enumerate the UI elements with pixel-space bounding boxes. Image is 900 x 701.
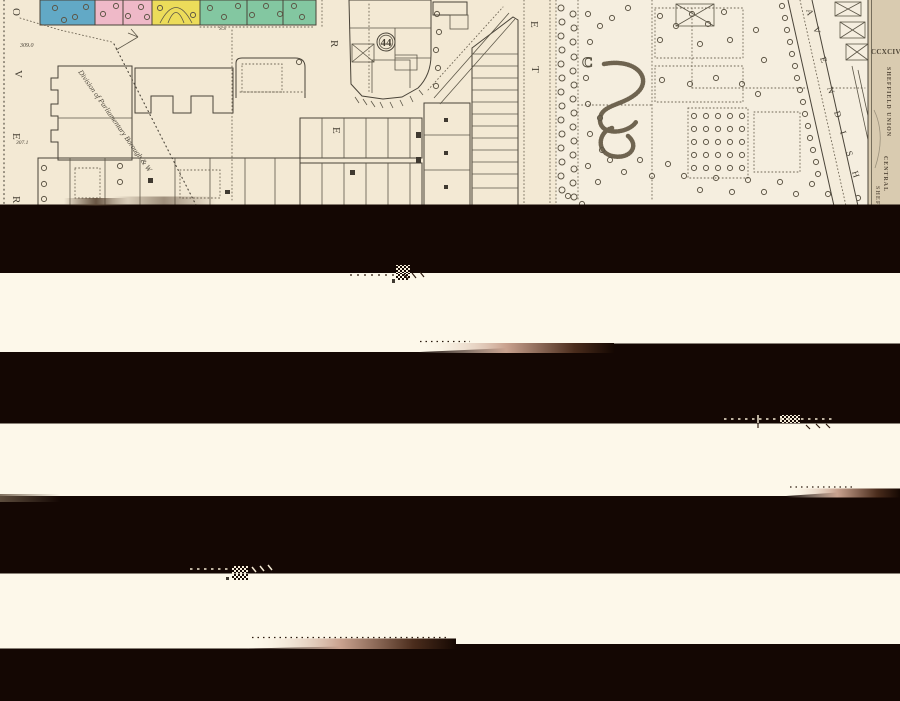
spot-level-upper: 309.0 — [19, 43, 34, 49]
glitch-cream-background — [0, 205, 900, 701]
street-letter: E — [528, 21, 540, 28]
glitch-band-3 — [0, 489, 900, 574]
sheet-margin: CCXCIV. SHEFFIELD UNION CENTRAL SHEF — [868, 0, 900, 206]
glitch-band-2 — [0, 344, 900, 424]
margin-union-label: SHEFFIELD UNION — [885, 67, 891, 137]
glitch-band-4 — [0, 644, 900, 701]
parcel-blue — [40, 0, 95, 25]
street-letter: R — [10, 196, 22, 204]
sheet-number-label: CCXCIV. — [871, 48, 900, 56]
scanned-map-screenshot: S.S 44 O V E R R E E T — [0, 0, 900, 701]
map: S.S 44 O V E R R E E T — [0, 0, 900, 207]
street-letter: O — [10, 8, 22, 16]
parcel-number: 44 — [381, 37, 393, 49]
street-letter: E — [10, 133, 22, 140]
margin-fragment-label: SHEF — [874, 186, 880, 206]
glitch-area — [0, 197, 900, 701]
street-letter: V — [12, 70, 24, 78]
spot-level-lower: 307.1 — [15, 140, 29, 146]
parcel-green — [200, 0, 316, 25]
block-letter: C — [582, 55, 593, 71]
street-letter: E — [330, 127, 342, 134]
street-letter: T — [529, 66, 541, 73]
margin-ward-label: CENTRAL — [882, 156, 888, 192]
glitch-band-1 — [0, 205, 900, 274]
street-letter: R — [328, 40, 340, 48]
